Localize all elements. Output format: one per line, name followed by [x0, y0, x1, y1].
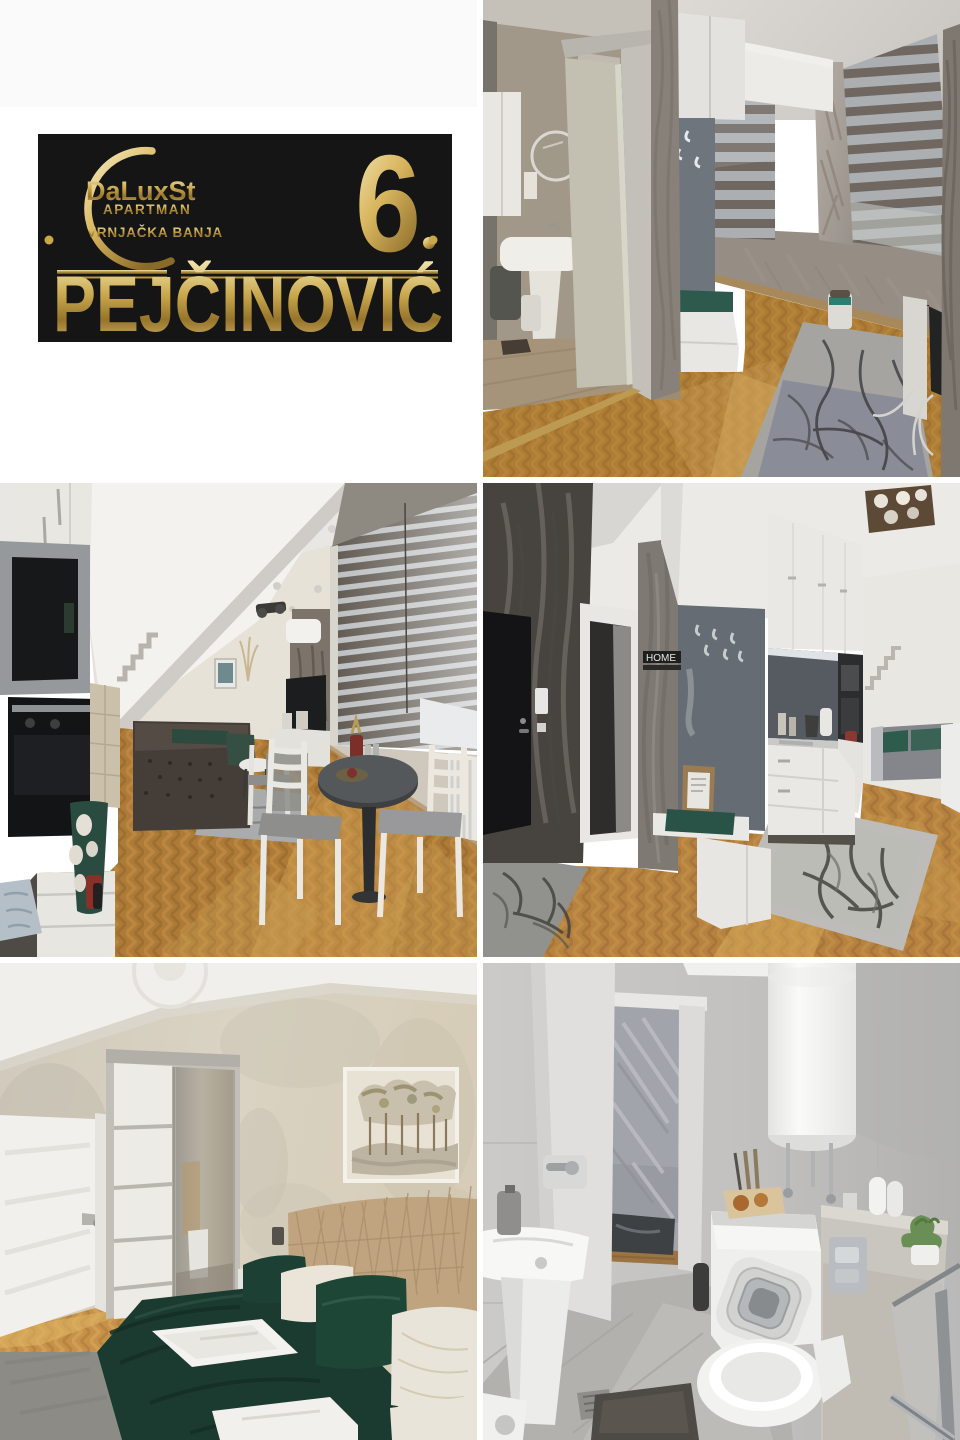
svg-text:HOME: HOME [646, 653, 676, 664]
svg-text:PEJČINOVIĆ: PEJČINOVIĆ [53, 259, 443, 348]
svg-text:APARTMAN: APARTMAN [103, 202, 191, 217]
svg-text:VRNJAČKA BANJA: VRNJAČKA BANJA [87, 225, 223, 240]
svg-text:6: 6 [355, 127, 421, 281]
